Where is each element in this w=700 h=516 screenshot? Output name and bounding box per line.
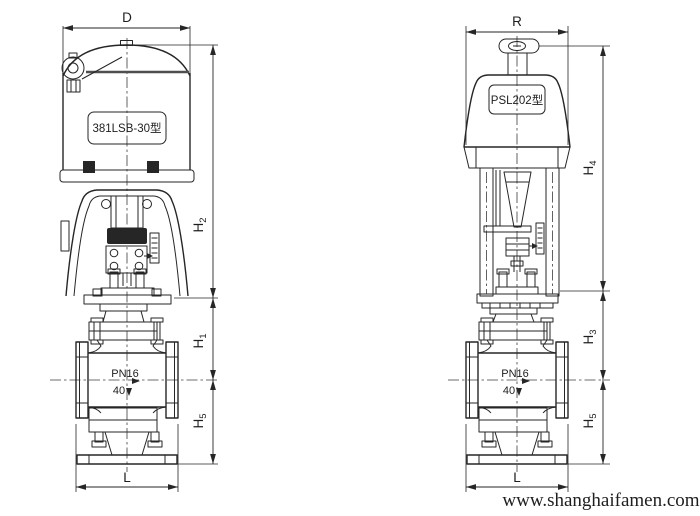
right-dim-width-label: R xyxy=(512,14,522,29)
left-pressure-class-label: PN16 xyxy=(111,368,139,380)
right-flow-rating: PN16 40 xyxy=(501,368,530,397)
left-dimension-H5: H5 xyxy=(168,380,218,464)
right-dimension-H3: H3 xyxy=(581,291,603,380)
right-pressure-class-label: PN16 xyxy=(501,368,529,380)
right-dim-length-label: L xyxy=(513,470,521,485)
left-dim-h1-label: H1 xyxy=(191,333,209,348)
left-actuator-model-label: 381LSB-30型 xyxy=(92,121,161,135)
right-dimension-H5: H5 xyxy=(568,380,610,464)
left-valve-view: 381LSB-30型 xyxy=(50,10,218,492)
right-stroke-scale xyxy=(536,223,544,254)
right-dim-h3-label: H3 xyxy=(581,329,599,344)
left-dimension-H1: H1 xyxy=(191,298,213,380)
right-dim-h4-label: H4 xyxy=(581,160,599,175)
right-yoke xyxy=(477,168,559,308)
right-stroke-pointer-icon xyxy=(529,243,538,249)
valve-technical-drawing: 381LSB-30型 xyxy=(0,0,700,516)
left-yoke xyxy=(61,190,188,304)
left-dim-length-label: L xyxy=(123,470,131,485)
watermark-url: www.shanghaifamen.com xyxy=(502,490,699,511)
left-stroke-scale xyxy=(150,233,159,263)
left-nominal-size-label: 40 xyxy=(113,385,125,397)
right-valve-view: PSL202型 xyxy=(448,14,610,492)
right-nominal-size-label: 40 xyxy=(503,385,515,397)
left-flow-rating: PN16 40 xyxy=(111,368,140,397)
left-dim-h5-label: H5 xyxy=(191,413,209,428)
left-dim-width-label: D xyxy=(122,10,132,25)
right-actuator-model-label: PSL202型 xyxy=(491,93,543,107)
left-dimension-H2: H2 xyxy=(131,45,218,298)
left-dim-h2-label: H2 xyxy=(191,217,209,232)
right-dim-h5-label: H5 xyxy=(581,413,599,428)
left-dimension-D: D xyxy=(63,10,190,73)
right-top-handle xyxy=(499,39,539,53)
